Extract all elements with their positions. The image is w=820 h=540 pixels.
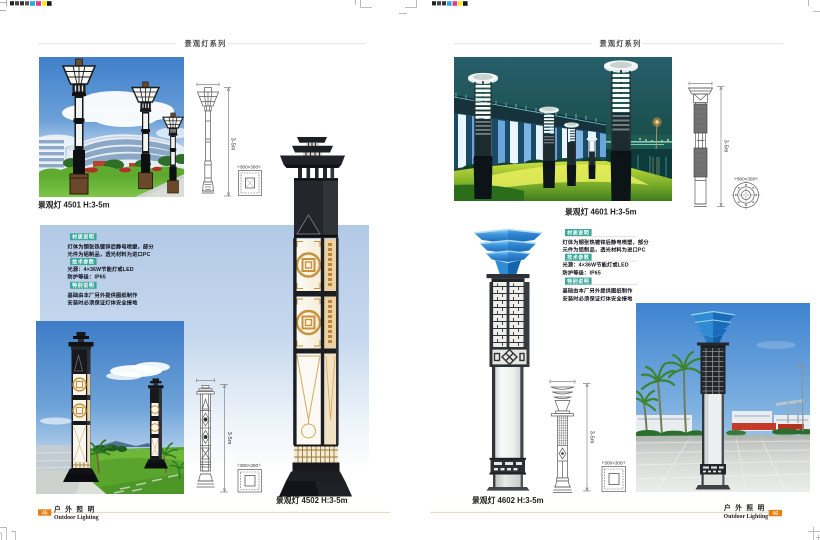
svg-text:防护等级：IP65: 防护等级：IP65 <box>68 273 106 281</box>
svg-text:Outdoor Lighting: Outdoor Lighting <box>724 514 769 520</box>
svg-text:300×300: 300×300 <box>604 460 622 465</box>
svg-text:特别说明: 特别说明 <box>72 282 94 289</box>
svg-text:安装时必须保证灯体安全接地: 安装时必须保证灯体安全接地 <box>68 299 139 307</box>
svg-text:景观灯 4501 H:3-5m: 景观灯 4501 H:3-5m <box>38 200 110 210</box>
svg-text:3-5m: 3-5m <box>230 138 236 151</box>
svg-text:景观灯 4602 H:3-5m: 景观灯 4602 H:3-5m <box>472 495 544 505</box>
svg-text:基础由本厂另外提供图纸制作: 基础由本厂另外提供图纸制作 <box>67 291 139 299</box>
svg-text:景观灯 4601 H:3-5m: 景观灯 4601 H:3-5m <box>565 207 637 217</box>
svg-text:技术参数: 技术参数 <box>72 258 95 265</box>
svg-text:景观灯系列: 景观灯系列 <box>600 39 642 48</box>
svg-text:特别说明: 特别说明 <box>567 278 589 285</box>
svg-text:元件为铝制品，透光材料为进口PC: 元件为铝制品，透光材料为进口PC <box>68 250 151 258</box>
svg-text:景观灯系列: 景观灯系列 <box>185 39 227 48</box>
svg-text:户外照明: 户外照明 <box>54 505 99 514</box>
svg-text:技术参数: 技术参数 <box>567 254 590 261</box>
svg-text:3-5m: 3-5m <box>722 140 728 153</box>
svg-text:元件为铝制品，透光材料为进口PC: 元件为铝制品，透光材料为进口PC <box>563 246 646 254</box>
svg-text:46: 46 <box>772 511 778 517</box>
svg-text:3-5m: 3-5m <box>226 432 232 445</box>
svg-text:300×300: 300×300 <box>240 165 258 170</box>
svg-text:安装时必须保证灯体安全接地: 安装时必须保证灯体安全接地 <box>563 294 634 302</box>
svg-text:基础由本厂另外提供图纸制作: 基础由本厂另外提供图纸制作 <box>562 287 634 295</box>
svg-text:灯体为钢张热镀锌后静电喷塑，部分: 灯体为钢张热镀锌后静电喷塑，部分 <box>68 242 155 250</box>
svg-text:材质说明: 材质说明 <box>567 229 589 236</box>
svg-text:灯体为钢张热镀锌后静电喷塑，部分: 灯体为钢张热镀锌后静电喷塑，部分 <box>563 238 650 246</box>
svg-text:景观灯 4502 H:3-5m: 景观灯 4502 H:3-5m <box>276 495 348 505</box>
svg-text:户外照明: 户外照明 <box>724 503 769 512</box>
svg-text:300×300: 300×300 <box>240 463 258 468</box>
svg-text:材质说明: 材质说明 <box>72 234 94 241</box>
svg-text:3-5m: 3-5m <box>588 431 594 444</box>
svg-text:Outdoor Lighting: Outdoor Lighting <box>54 515 99 521</box>
svg-text:光源：4×36W节能灯或LED: 光源：4×36W节能灯或LED <box>67 265 134 273</box>
svg-text:45: 45 <box>42 511 48 517</box>
svg-text:防护等级：IP65: 防护等级：IP65 <box>563 268 601 276</box>
svg-text:光源：4×36W节能灯或LED: 光源：4×36W节能灯或LED <box>562 261 629 269</box>
